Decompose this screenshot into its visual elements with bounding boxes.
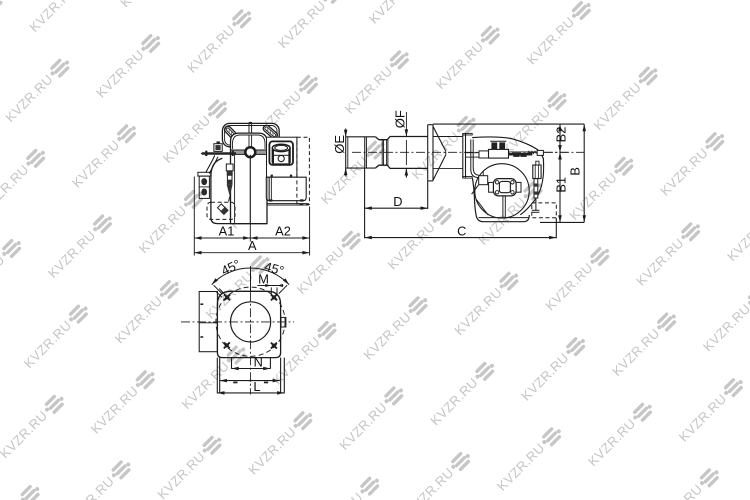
svg-text:A: A: [248, 238, 257, 253]
svg-text:ØE: ØE: [332, 135, 347, 154]
svg-text:D: D: [393, 194, 402, 209]
svg-text:ØF: ØF: [393, 110, 408, 128]
svg-text:B: B: [568, 167, 583, 176]
svg-text:A1: A1: [219, 224, 235, 239]
svg-text:L: L: [253, 379, 260, 394]
svg-text:B2: B2: [553, 127, 568, 143]
svg-text:M: M: [258, 272, 269, 287]
svg-text:A2: A2: [275, 224, 291, 239]
svg-text:B1: B1: [553, 177, 568, 193]
svg-text:C: C: [457, 223, 466, 238]
svg-text:N: N: [254, 354, 263, 369]
